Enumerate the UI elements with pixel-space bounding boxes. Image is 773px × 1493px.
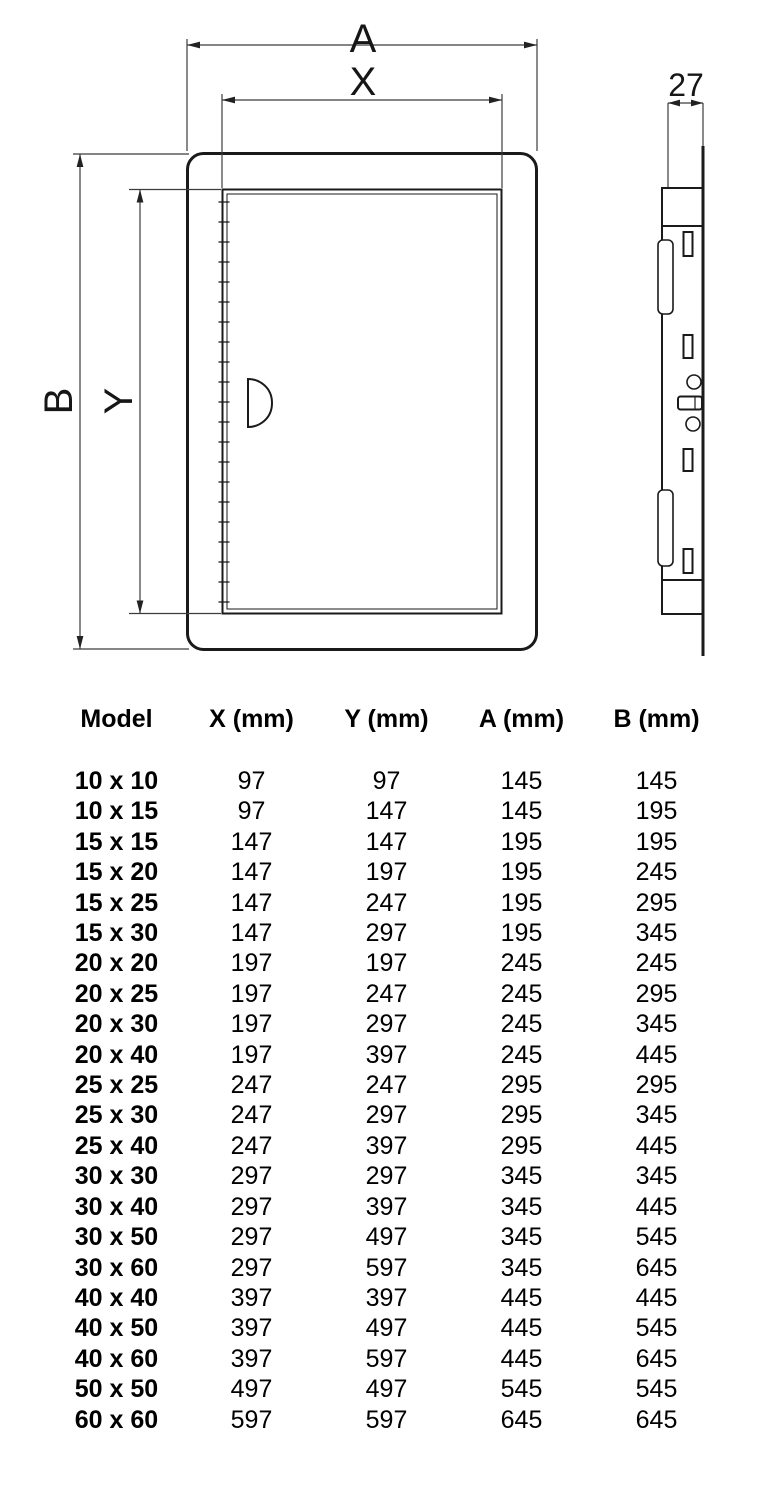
value-cell: 297 xyxy=(184,1253,319,1283)
side-screw-hole-top xyxy=(687,375,701,389)
value-cell: 197 xyxy=(319,948,454,978)
dimension-depth-lines xyxy=(668,103,703,187)
dimension-y-label: Y xyxy=(97,388,141,415)
value-cell: 295 xyxy=(589,888,724,918)
value-cell: 345 xyxy=(589,1161,724,1191)
table-row: 10 x 1597147145195 xyxy=(49,796,724,826)
model-cell: 10 x 10 xyxy=(49,736,184,796)
value-cell: 597 xyxy=(319,1253,454,1283)
value-cell: 297 xyxy=(319,1100,454,1130)
table-row: 15 x 15147147195195 xyxy=(49,827,724,857)
value-cell: 345 xyxy=(589,918,724,948)
value-cell: 297 xyxy=(184,1192,319,1222)
value-cell: 445 xyxy=(454,1283,589,1313)
side-screw-hole-bottom xyxy=(686,417,700,431)
model-cell: 30 x 40 xyxy=(49,1192,184,1222)
value-cell: 197 xyxy=(184,1040,319,1070)
table-row: 30 x 30297297345345 xyxy=(49,1161,724,1191)
value-cell: 297 xyxy=(319,1009,454,1039)
value-cell: 147 xyxy=(184,827,319,857)
model-cell: 25 x 30 xyxy=(49,1100,184,1130)
table-row: 15 x 20147197195245 xyxy=(49,857,724,887)
value-cell: 197 xyxy=(184,948,319,978)
model-cell: 40 x 50 xyxy=(49,1313,184,1343)
column-header: Y (mm) xyxy=(319,702,454,736)
value-cell: 147 xyxy=(319,796,454,826)
size-table-body: 10 x 10979714514510 x 159714714519515 x … xyxy=(49,736,724,1435)
value-cell: 247 xyxy=(184,1100,319,1130)
table-row: 60 x 60597597645645 xyxy=(49,1405,724,1435)
value-cell: 97 xyxy=(184,736,319,796)
value-cell: 295 xyxy=(589,979,724,1009)
value-cell: 147 xyxy=(184,857,319,887)
value-cell: 247 xyxy=(319,979,454,1009)
table-row: 25 x 40247397295445 xyxy=(49,1131,724,1161)
model-cell: 15 x 20 xyxy=(49,857,184,887)
table-row: 30 x 50297497345545 xyxy=(49,1222,724,1252)
value-cell: 245 xyxy=(454,1040,589,1070)
model-cell: 30 x 60 xyxy=(49,1253,184,1283)
value-cell: 247 xyxy=(184,1131,319,1161)
model-cell: 30 x 50 xyxy=(49,1222,184,1252)
value-cell: 197 xyxy=(319,857,454,887)
value-cell: 295 xyxy=(454,1100,589,1130)
dimension-a-label: A xyxy=(350,17,377,61)
value-cell: 497 xyxy=(319,1374,454,1404)
value-cell: 297 xyxy=(184,1161,319,1191)
value-cell: 295 xyxy=(454,1131,589,1161)
dimension-depth-label: 27 xyxy=(668,67,704,103)
value-cell: 147 xyxy=(184,888,319,918)
column-header: X (mm) xyxy=(184,702,319,736)
value-cell: 597 xyxy=(319,1405,454,1435)
column-header: Model xyxy=(49,702,184,736)
size-table-head: ModelX (mm)Y (mm)A (mm)B (mm) xyxy=(49,702,724,736)
value-cell: 197 xyxy=(184,1009,319,1039)
model-cell: 40 x 60 xyxy=(49,1344,184,1374)
value-cell: 397 xyxy=(184,1283,319,1313)
value-cell: 497 xyxy=(319,1222,454,1252)
side-latch xyxy=(678,397,702,410)
value-cell: 345 xyxy=(589,1100,724,1130)
value-cell: 445 xyxy=(454,1313,589,1343)
model-cell: 60 x 60 xyxy=(49,1405,184,1435)
value-cell: 397 xyxy=(184,1313,319,1343)
value-cell: 345 xyxy=(454,1222,589,1252)
value-cell: 195 xyxy=(589,827,724,857)
value-cell: 245 xyxy=(454,948,589,978)
table-row: 25 x 30247297295345 xyxy=(49,1100,724,1130)
table-row: 25 x 25247247295295 xyxy=(49,1070,724,1100)
model-cell: 20 x 20 xyxy=(49,948,184,978)
value-cell: 397 xyxy=(319,1283,454,1313)
value-cell: 645 xyxy=(589,1405,724,1435)
product-spec-sheet: A X B Y xyxy=(0,0,773,1493)
size-table: ModelX (mm)Y (mm)A (mm)B (mm) 10 x 10979… xyxy=(49,702,724,1435)
value-cell: 245 xyxy=(454,1009,589,1039)
dimension-b-label: B xyxy=(37,388,81,415)
value-cell: 295 xyxy=(589,1070,724,1100)
value-cell: 645 xyxy=(589,1253,724,1283)
value-cell: 445 xyxy=(454,1344,589,1374)
table-row: 40 x 60397597445645 xyxy=(49,1344,724,1374)
value-cell: 297 xyxy=(184,1222,319,1252)
model-cell: 20 x 25 xyxy=(49,979,184,1009)
model-cell: 20 x 30 xyxy=(49,1009,184,1039)
table-row: 20 x 40197397245445 xyxy=(49,1040,724,1070)
table-row: 15 x 30147297195345 xyxy=(49,918,724,948)
table-row: 10 x 109797145145 xyxy=(49,736,724,796)
value-cell: 247 xyxy=(319,888,454,918)
table-row: 30 x 40297397345445 xyxy=(49,1192,724,1222)
value-cell: 245 xyxy=(589,948,724,978)
value-cell: 97 xyxy=(184,796,319,826)
value-cell: 397 xyxy=(319,1131,454,1161)
value-cell: 145 xyxy=(454,796,589,826)
value-cell: 295 xyxy=(454,1070,589,1100)
front-view: A X B Y xyxy=(37,17,537,650)
value-cell: 195 xyxy=(589,796,724,826)
table-row: 30 x 60297597345645 xyxy=(49,1253,724,1283)
table-row: 15 x 25147247195295 xyxy=(49,888,724,918)
value-cell: 397 xyxy=(184,1344,319,1374)
value-cell: 597 xyxy=(184,1405,319,1435)
column-header: A (mm) xyxy=(454,702,589,736)
value-cell: 497 xyxy=(184,1374,319,1404)
table-row: 40 x 40397397445445 xyxy=(49,1283,724,1313)
value-cell: 145 xyxy=(589,736,724,796)
header-row: ModelX (mm)Y (mm)A (mm)B (mm) xyxy=(49,702,724,736)
value-cell: 545 xyxy=(589,1313,724,1343)
value-cell: 97 xyxy=(319,736,454,796)
value-cell: 345 xyxy=(454,1253,589,1283)
value-cell: 345 xyxy=(454,1161,589,1191)
value-cell: 645 xyxy=(589,1344,724,1374)
table-row: 40 x 50397497445545 xyxy=(49,1313,724,1343)
value-cell: 445 xyxy=(589,1131,724,1161)
model-cell: 50 x 50 xyxy=(49,1374,184,1404)
value-cell: 195 xyxy=(454,918,589,948)
model-cell: 10 x 15 xyxy=(49,796,184,826)
value-cell: 397 xyxy=(319,1040,454,1070)
model-cell: 15 x 25 xyxy=(49,888,184,918)
value-cell: 195 xyxy=(454,888,589,918)
value-cell: 245 xyxy=(454,979,589,1009)
value-cell: 345 xyxy=(589,1009,724,1039)
model-cell: 15 x 30 xyxy=(49,918,184,948)
value-cell: 445 xyxy=(589,1040,724,1070)
table-row: 50 x 50497497545545 xyxy=(49,1374,724,1404)
value-cell: 197 xyxy=(184,979,319,1009)
side-spring-tab-bottom xyxy=(658,490,673,566)
value-cell: 195 xyxy=(454,827,589,857)
value-cell: 545 xyxy=(589,1374,724,1404)
model-cell: 40 x 40 xyxy=(49,1283,184,1313)
dimension-x-label: X xyxy=(350,60,377,104)
value-cell: 445 xyxy=(589,1192,724,1222)
table-row: 20 x 25197247245295 xyxy=(49,979,724,1009)
side-view: 27 xyxy=(658,67,704,656)
model-cell: 30 x 30 xyxy=(49,1161,184,1191)
value-cell: 297 xyxy=(319,1161,454,1191)
door-hinge-ticks xyxy=(219,202,230,602)
value-cell: 147 xyxy=(184,918,319,948)
column-header: B (mm) xyxy=(589,702,724,736)
value-cell: 545 xyxy=(454,1374,589,1404)
value-cell: 445 xyxy=(589,1283,724,1313)
model-cell: 25 x 40 xyxy=(49,1131,184,1161)
value-cell: 147 xyxy=(319,827,454,857)
side-spring-tab-top xyxy=(658,240,673,314)
value-cell: 247 xyxy=(319,1070,454,1100)
table-row: 20 x 20197197245245 xyxy=(49,948,724,978)
value-cell: 497 xyxy=(319,1313,454,1343)
value-cell: 645 xyxy=(454,1405,589,1435)
model-cell: 25 x 25 xyxy=(49,1070,184,1100)
value-cell: 297 xyxy=(319,918,454,948)
value-cell: 247 xyxy=(184,1070,319,1100)
value-cell: 145 xyxy=(454,736,589,796)
model-cell: 20 x 40 xyxy=(49,1040,184,1070)
value-cell: 345 xyxy=(454,1192,589,1222)
value-cell: 195 xyxy=(454,857,589,887)
dimension-depth: 27 xyxy=(668,67,704,187)
value-cell: 245 xyxy=(589,857,724,887)
technical-drawing: A X B Y xyxy=(0,0,773,690)
value-cell: 397 xyxy=(319,1192,454,1222)
value-cell: 597 xyxy=(319,1344,454,1374)
value-cell: 545 xyxy=(589,1222,724,1252)
table-row: 20 x 30197297245345 xyxy=(49,1009,724,1039)
model-cell: 15 x 15 xyxy=(49,827,184,857)
